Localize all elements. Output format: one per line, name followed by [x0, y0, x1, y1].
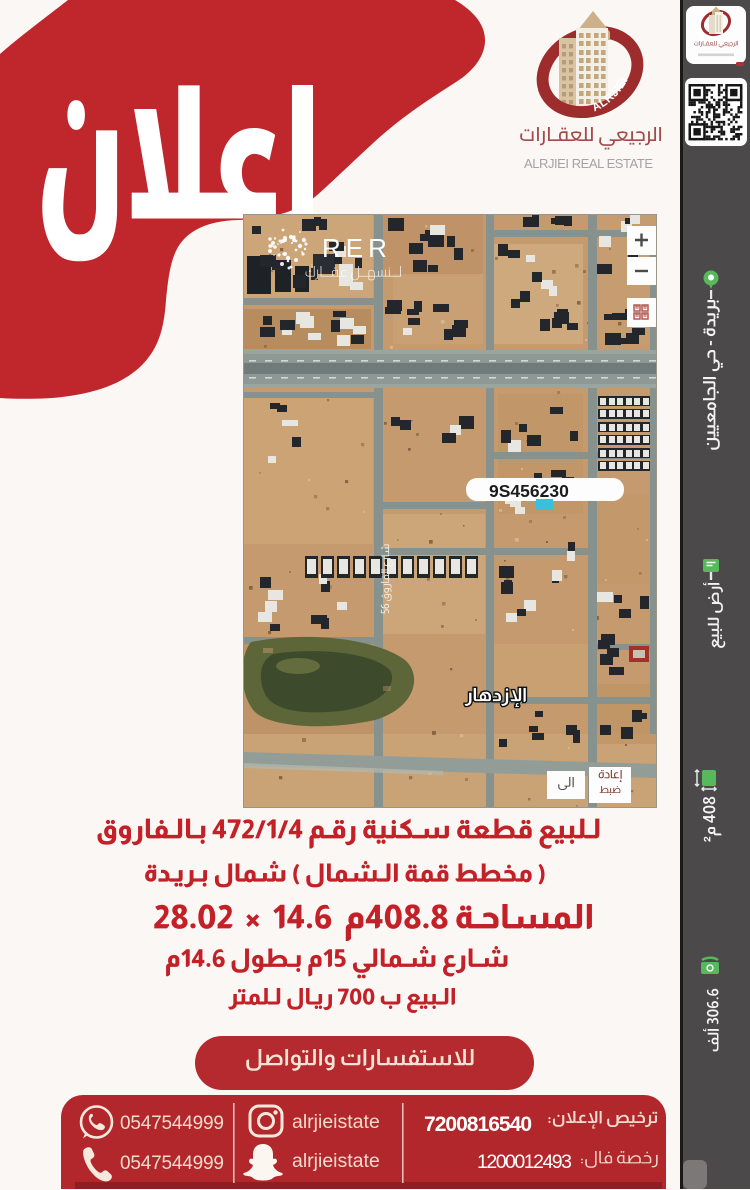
svg-text:alrjieistate: alrjieistate	[292, 1111, 380, 1133]
svg-text:1200012493: 1200012493	[477, 1151, 572, 1173]
svg-text:9S456230: 9S456230	[489, 481, 569, 501]
svg-text:RER: RER	[322, 233, 392, 263]
svg-text:7200816540: 7200816540	[424, 1113, 532, 1136]
svg-text:alrjieistate: alrjieistate	[292, 1150, 380, 1172]
svg-text:ALRJIEI REAL ESTATE: ALRJIEI REAL ESTATE	[524, 156, 654, 171]
svg-text:0547544999: 0547544999	[120, 1113, 224, 1134]
svg-text:0547544999: 0547544999	[120, 1153, 224, 1174]
